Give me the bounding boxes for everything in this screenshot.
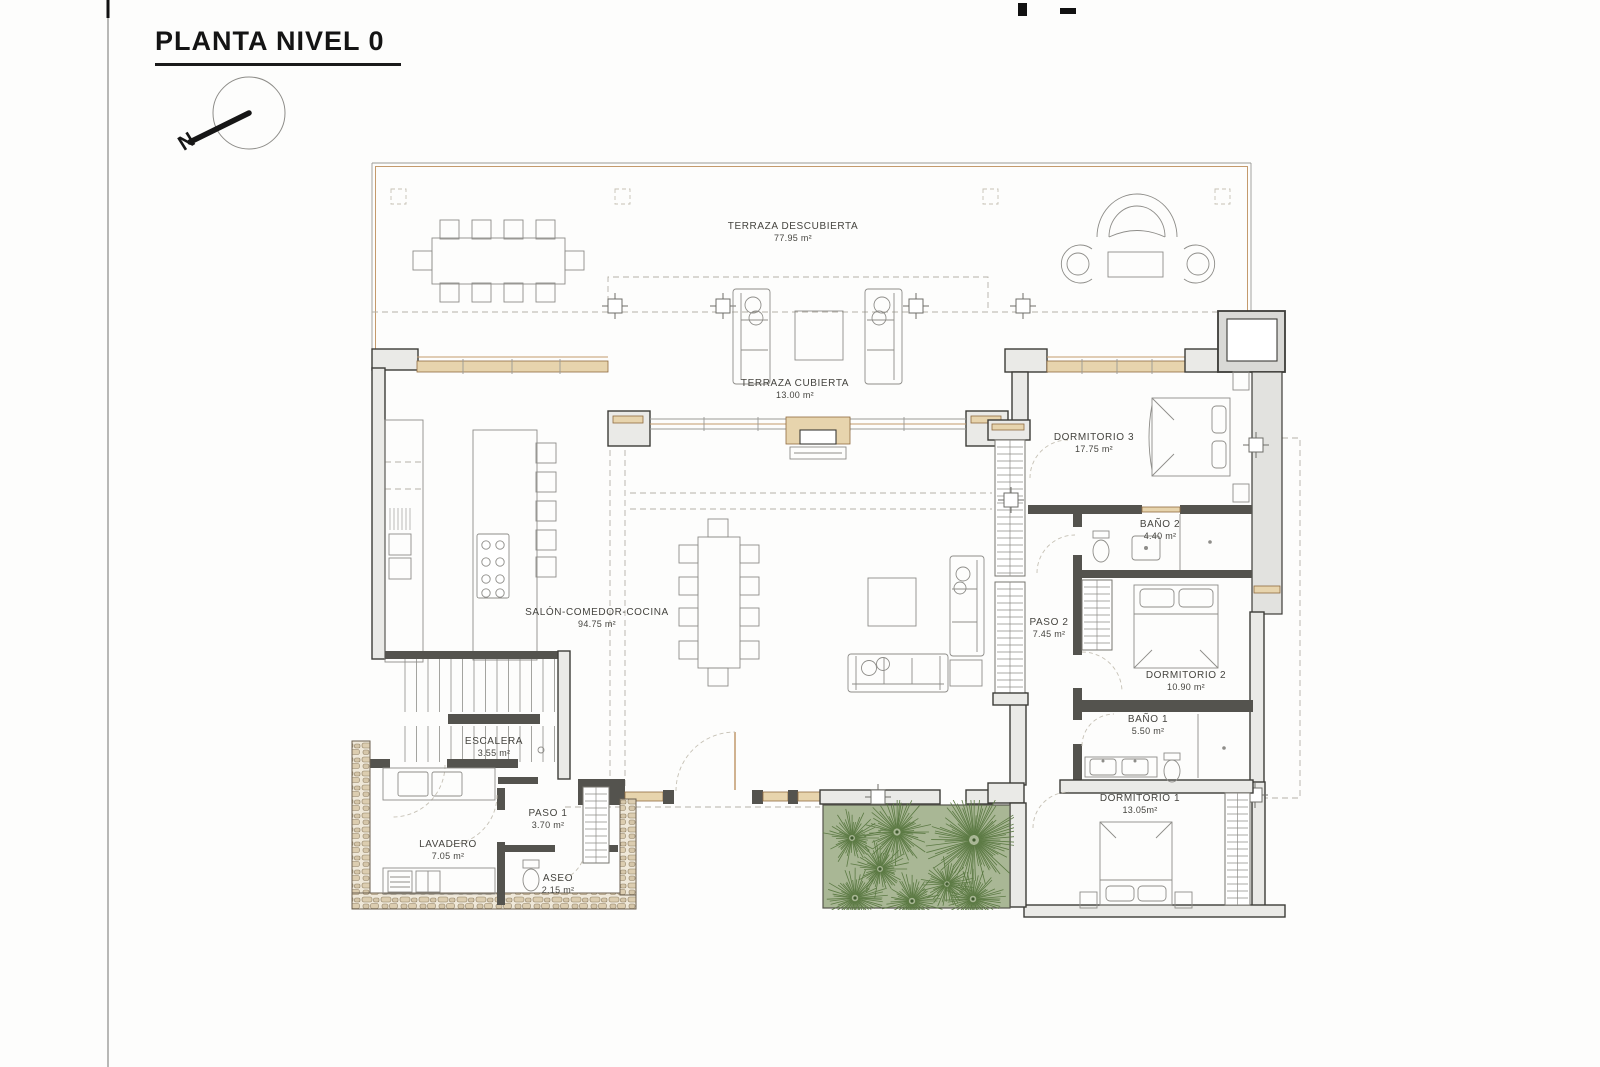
room-label-lavadero: LAVADERO xyxy=(419,839,477,850)
column-marker xyxy=(710,293,736,319)
lounge-table xyxy=(1108,252,1163,277)
area-label-salon: 94.75 m² xyxy=(578,619,616,629)
wall-west xyxy=(372,368,385,659)
wardrobe-paso2-lower xyxy=(995,582,1025,693)
north-indicator: N xyxy=(174,77,285,155)
room-label-paso1: PASO 1 xyxy=(529,808,568,819)
area-label-paso2: 7.45 m² xyxy=(1033,629,1066,639)
bed-dormitorio-3 xyxy=(1149,372,1249,502)
covered-terrace-overhang-dashed xyxy=(608,277,988,312)
column-marker-dashed-squares xyxy=(391,189,1230,204)
room-label-dormitorio3: DORMITORIO 3 xyxy=(1054,432,1134,443)
wall-bano1-south xyxy=(1060,780,1253,793)
aseo-toilet xyxy=(523,860,539,891)
dorm3-door-arc xyxy=(1030,440,1068,478)
floor-plan-drawing: N xyxy=(0,0,1600,1067)
room-label-salon: SALÓN-COMEDOR-COCINA xyxy=(525,605,669,618)
wall-lavadero-north xyxy=(447,759,518,768)
entrance-door-arc xyxy=(676,732,735,791)
area-label-lavadero: 7.05 m² xyxy=(432,851,465,861)
column-marker xyxy=(903,293,929,319)
garden xyxy=(823,793,1022,930)
column-marker xyxy=(602,293,628,319)
coffee-table xyxy=(868,578,916,626)
column-marker xyxy=(1010,293,1036,319)
room-label-bano2: BAÑO 2 xyxy=(1140,517,1180,530)
wall-east-mid xyxy=(1250,612,1264,784)
room-label-terraza-descubierta: TERRAZA DESCUBIERTA xyxy=(728,221,859,232)
wall-bano1-north xyxy=(1073,700,1253,712)
area-label-escalera: 3.55 m² xyxy=(478,748,511,758)
interior-walls-east-wing xyxy=(988,372,1253,905)
window-band-north-left xyxy=(417,361,608,372)
top-tick-1 xyxy=(1018,3,1027,16)
room-label-aseo: ASEO xyxy=(543,873,573,884)
wardrobe-paso2-upper xyxy=(995,440,1025,576)
dorm1-door-arc xyxy=(1033,792,1069,828)
wall-pier-nw xyxy=(372,349,418,370)
terrace-outline xyxy=(372,163,1251,349)
room-label-bano1: BAÑO 1 xyxy=(1128,712,1168,725)
wall-pier-wing-nw xyxy=(1005,349,1047,372)
bed-dormitorio-2 xyxy=(1134,585,1218,668)
wardrobe-dorm2 xyxy=(1082,580,1112,650)
utility-block-walls xyxy=(352,741,636,909)
wall-stairs-east xyxy=(558,651,570,779)
stone-wall-east xyxy=(620,799,636,895)
window-band-north-right xyxy=(1047,361,1185,372)
room-label-dormitorio1: DORMITORIO 1 xyxy=(1100,793,1180,804)
north-letter: N xyxy=(174,128,199,156)
room-label-paso2: PASO 2 xyxy=(1030,617,1069,628)
wall-stairs-north xyxy=(385,651,563,659)
wardrobe-paso1 xyxy=(583,787,609,863)
stone-wall-west xyxy=(352,741,370,909)
outdoor-dining-set xyxy=(413,220,584,302)
bed-dormitorio-1 xyxy=(1080,822,1192,908)
top-tick-2 xyxy=(1060,8,1076,14)
covered-terrace-sofas xyxy=(733,289,902,384)
outdoor-lounge-set xyxy=(1061,194,1214,283)
stair-treads-upper xyxy=(405,659,555,712)
room-label-escalera: ESCALERA xyxy=(465,736,523,747)
laundry-fixtures xyxy=(383,768,495,894)
annex-window xyxy=(1227,319,1277,361)
wall-dorm2-west xyxy=(1073,578,1082,655)
area-label-dormitorio3: 17.75 m² xyxy=(1075,444,1113,454)
north-arrow-line xyxy=(190,113,249,142)
area-label-dormitorio2: 10.90 m² xyxy=(1167,682,1205,692)
area-label-bano2: 4.40 m² xyxy=(1144,531,1177,541)
wall-bano2-south xyxy=(1073,570,1252,578)
terrace-coffee-table xyxy=(795,311,843,360)
structural-grid-dashed xyxy=(385,430,1300,807)
room-label-dormitorio2: DORMITORIO 2 xyxy=(1146,670,1226,681)
kitchen-counter xyxy=(385,420,423,662)
room-label-terraza-cubierta: TERRAZA CUBIERTA xyxy=(741,378,849,389)
area-label-aseo: 2.15 m² xyxy=(542,885,575,895)
indoor-dining-set xyxy=(679,519,759,686)
wardrobe-dorm1 xyxy=(1225,793,1250,905)
wall-east-mass xyxy=(1252,372,1282,614)
area-label-bano1: 5.50 m² xyxy=(1132,726,1165,736)
area-label-paso1: 3.70 m² xyxy=(532,820,565,830)
area-label-terraza-cubierta: 13.00 m² xyxy=(776,390,814,400)
stone-wall-south xyxy=(352,893,636,909)
page-title: PLANTA NIVEL 0 xyxy=(155,26,401,66)
washer-icon xyxy=(388,871,412,892)
kitchen-island xyxy=(473,430,556,660)
area-label-terraza-descubierta: 77.95 m² xyxy=(774,233,812,243)
wall-bano2-north xyxy=(1028,505,1142,514)
wall-south-wing xyxy=(1024,905,1285,917)
floor-plan-page: PLANTA NIVEL 0 N xyxy=(0,0,1600,1067)
area-label-dormitorio1: 13.05m² xyxy=(1122,805,1157,815)
living-sofa-set xyxy=(848,556,984,692)
wall-vestibule-west xyxy=(1010,693,1026,785)
stair-rail-wall xyxy=(448,714,540,724)
